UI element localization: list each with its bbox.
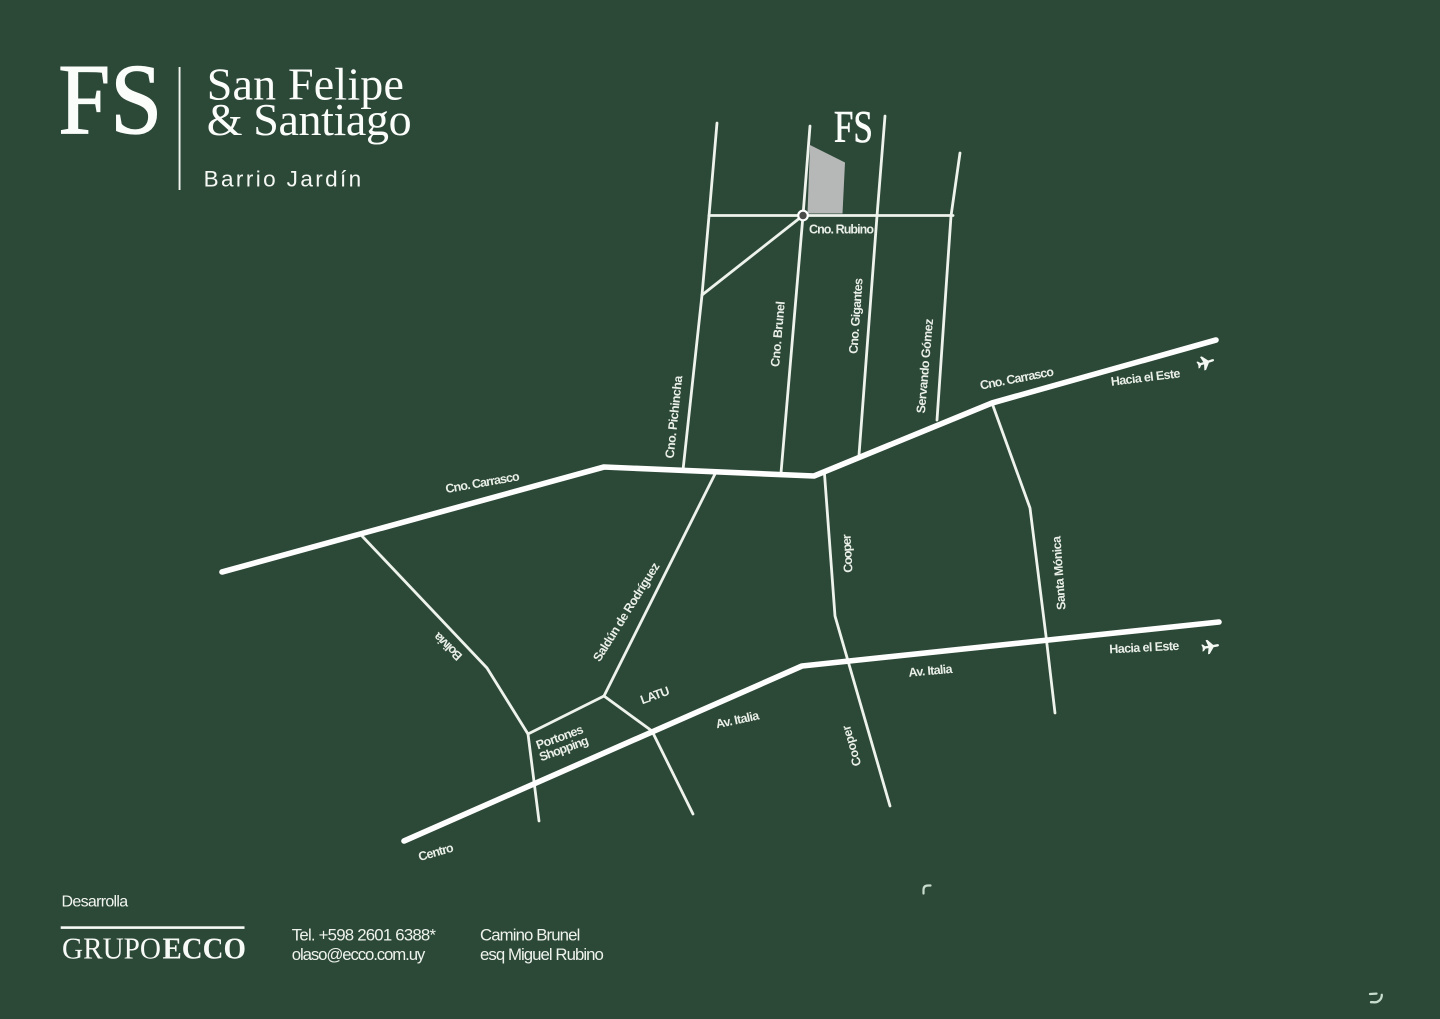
- svg-text:FS: FS: [834, 101, 873, 152]
- svg-text:Cooper: Cooper: [839, 534, 855, 573]
- svg-text:Tel. +598 2601 6388*: Tel. +598 2601 6388*: [292, 926, 437, 945]
- svg-text:Camino Brunel: Camino Brunel: [480, 926, 580, 945]
- svg-text:Cno. Rubino: Cno. Rubino: [809, 223, 874, 237]
- svg-text:GRUPO: GRUPO: [62, 932, 161, 966]
- svg-text:olaso@ecco.com.uy: olaso@ecco.com.uy: [292, 945, 426, 964]
- svg-text:esq Miguel Rubino: esq Miguel Rubino: [480, 945, 604, 964]
- svg-text:ECCO: ECCO: [163, 932, 247, 966]
- svg-text:FS: FS: [58, 43, 162, 155]
- svg-text:Barrio Jardín: Barrio Jardín: [204, 167, 362, 192]
- svg-text:& Santiago: & Santiago: [207, 94, 412, 145]
- svg-text:Desarrolla: Desarrolla: [62, 894, 129, 911]
